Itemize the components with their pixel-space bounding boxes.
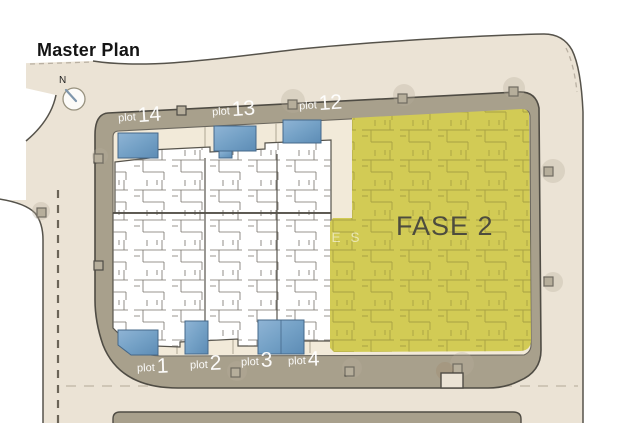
block-entrance — [441, 373, 463, 388]
north-arrow-icon — [63, 88, 85, 110]
bottom-street-band — [113, 412, 521, 423]
master-plan-page: Master Plan N plot14 plot13 plot12 plot1… — [0, 0, 630, 423]
buildings-fase1 — [113, 140, 331, 347]
fase2-overlay — [330, 109, 531, 352]
site-plan-drawing — [0, 0, 630, 423]
